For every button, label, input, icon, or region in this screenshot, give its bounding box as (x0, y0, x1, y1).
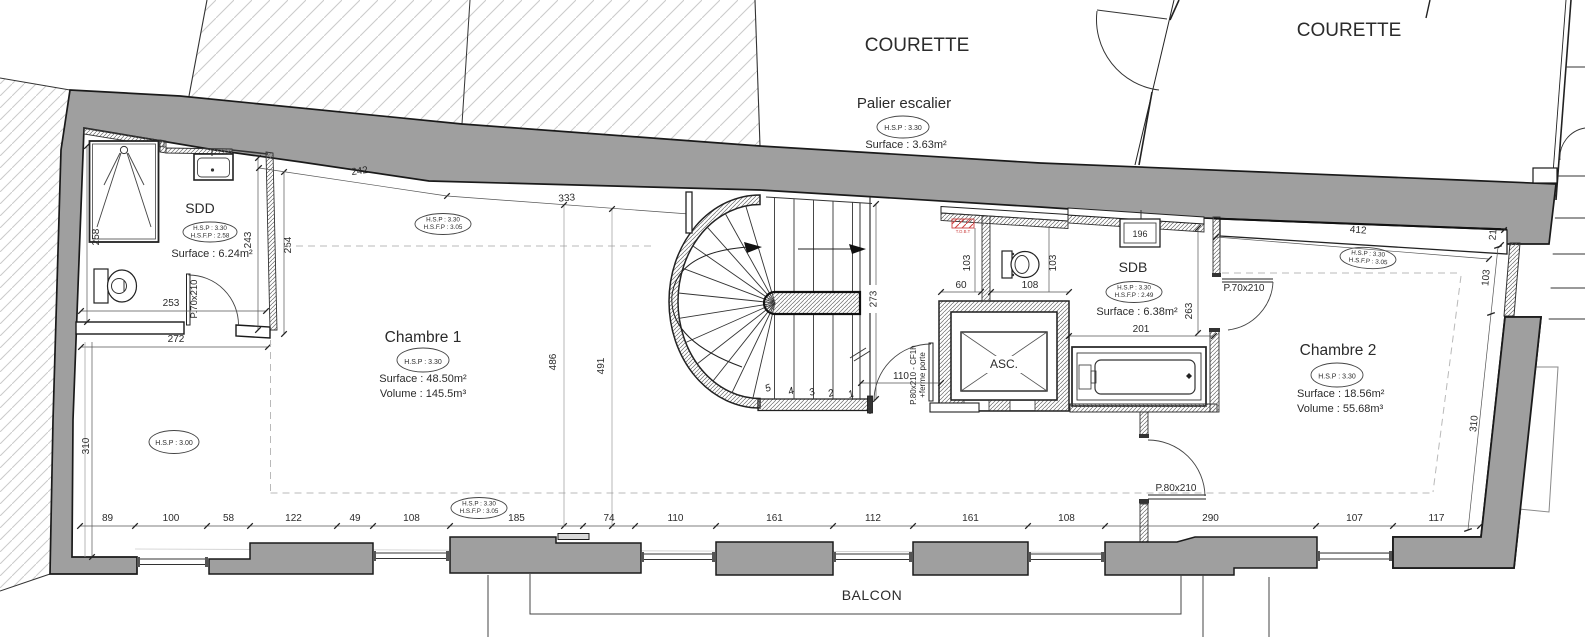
svg-text:112: 112 (865, 513, 881, 524)
svg-text:110: 110 (893, 371, 909, 382)
svg-text:SDD: SDD (185, 200, 215, 216)
svg-text:H.S.F.P : 2.49: H.S.F.P : 2.49 (1115, 292, 1154, 299)
svg-text:161: 161 (766, 513, 783, 524)
svg-text:Chambre 2: Chambre 2 (1300, 342, 1377, 359)
svg-text:74: 74 (603, 513, 615, 524)
svg-text:89: 89 (102, 513, 114, 524)
svg-text:P.80x210: P.80x210 (1156, 483, 1197, 494)
svg-text:SDB: SDB (1119, 259, 1148, 275)
svg-text:Chambre 1: Chambre 1 (385, 329, 462, 346)
svg-text:H.S.P : 3.30: H.S.P : 3.30 (193, 225, 227, 232)
svg-text:T.O.B.T: T.O.B.T (956, 229, 971, 234)
svg-text:290: 290 (1202, 513, 1219, 524)
svg-text:108: 108 (1058, 513, 1075, 524)
svg-text:P.70x210: P.70x210 (1224, 283, 1265, 294)
svg-text:BALCON: BALCON (842, 587, 903, 603)
svg-text:196: 196 (1132, 229, 1147, 239)
svg-text:161: 161 (962, 513, 979, 524)
svg-text:ASC.: ASC. (990, 357, 1018, 371)
svg-text:253: 253 (163, 298, 180, 309)
svg-text:58: 58 (223, 513, 235, 524)
svg-text:H.S.F.P : 3.05: H.S.F.P : 3.05 (424, 224, 463, 231)
svg-text:21: 21 (1488, 228, 1500, 240)
svg-text:Surface : 18.56m²: Surface : 18.56m² (1297, 388, 1385, 400)
svg-text:103: 103 (1048, 254, 1059, 271)
svg-text:H.S.P : 3.30: H.S.P : 3.30 (462, 501, 496, 508)
svg-text:H.S.P : 3.30: H.S.P : 3.30 (404, 359, 442, 366)
svg-text:491: 491 (596, 357, 607, 374)
svg-text:60: 60 (955, 280, 967, 291)
svg-text:H.S.F.P : 2.58: H.S.F.P : 2.58 (191, 233, 230, 240)
svg-text:H.S.P : 3.30: H.S.P : 3.30 (1318, 374, 1356, 381)
svg-text:Surface : 6.24m²: Surface : 6.24m² (171, 248, 253, 260)
svg-text:263: 263 (1184, 302, 1195, 319)
svg-text:+ferme porte: +ferme porte (918, 352, 927, 398)
svg-text:103: 103 (962, 254, 973, 271)
svg-text:100: 100 (163, 513, 180, 524)
svg-text:310: 310 (81, 437, 92, 454)
svg-text:201: 201 (1133, 324, 1150, 335)
svg-text:Surface : 3.63m²: Surface : 3.63m² (865, 139, 947, 151)
svg-text:272: 272 (168, 334, 185, 345)
svg-text:254: 254 (283, 236, 294, 253)
svg-text:108: 108 (403, 513, 420, 524)
svg-text:H.S.P : 3.30: H.S.P : 3.30 (426, 217, 460, 224)
svg-text:H.S.P : 3.30: H.S.P : 3.30 (884, 125, 922, 132)
svg-text:COURETTE: COURETTE (1297, 20, 1402, 41)
svg-text:412: 412 (1349, 224, 1367, 236)
svg-text:Surface : 48.50m²: Surface : 48.50m² (379, 373, 467, 385)
svg-text:122: 122 (285, 513, 302, 524)
svg-text:110: 110 (668, 513, 684, 524)
svg-text:108: 108 (1022, 280, 1039, 291)
svg-text:P.70x210: P.70x210 (189, 280, 200, 319)
svg-text:P.80x210 - CF1h: P.80x210 - CF1h (909, 345, 918, 404)
svg-text:H.S.P : 3.00: H.S.P : 3.00 (155, 440, 193, 447)
svg-text:Palier escalier: Palier escalier (857, 95, 951, 112)
svg-text:H.S.P : 3.30: H.S.P : 3.30 (1117, 285, 1151, 292)
svg-text:H.S.F.P : 3.05: H.S.F.P : 3.05 (460, 508, 499, 515)
svg-text:310: 310 (1468, 414, 1481, 432)
svg-text:COURETTE: COURETTE (865, 35, 970, 56)
svg-text:117: 117 (1429, 513, 1445, 524)
svg-text:185: 185 (508, 513, 525, 524)
svg-text:Volume : 145.5m³: Volume : 145.5m³ (380, 388, 467, 400)
svg-text:Surface : 6.38m²: Surface : 6.38m² (1096, 306, 1178, 318)
svg-text:49: 49 (349, 513, 361, 524)
svg-text:258: 258 (91, 228, 102, 245)
svg-text:243: 243 (243, 231, 254, 248)
svg-text:103: 103 (1480, 269, 1492, 287)
svg-text:Volume : 55.68m³: Volume : 55.68m³ (1297, 403, 1384, 415)
svg-text:273: 273 (869, 290, 880, 307)
svg-text:107: 107 (1346, 513, 1363, 524)
svg-text:486: 486 (548, 353, 559, 370)
